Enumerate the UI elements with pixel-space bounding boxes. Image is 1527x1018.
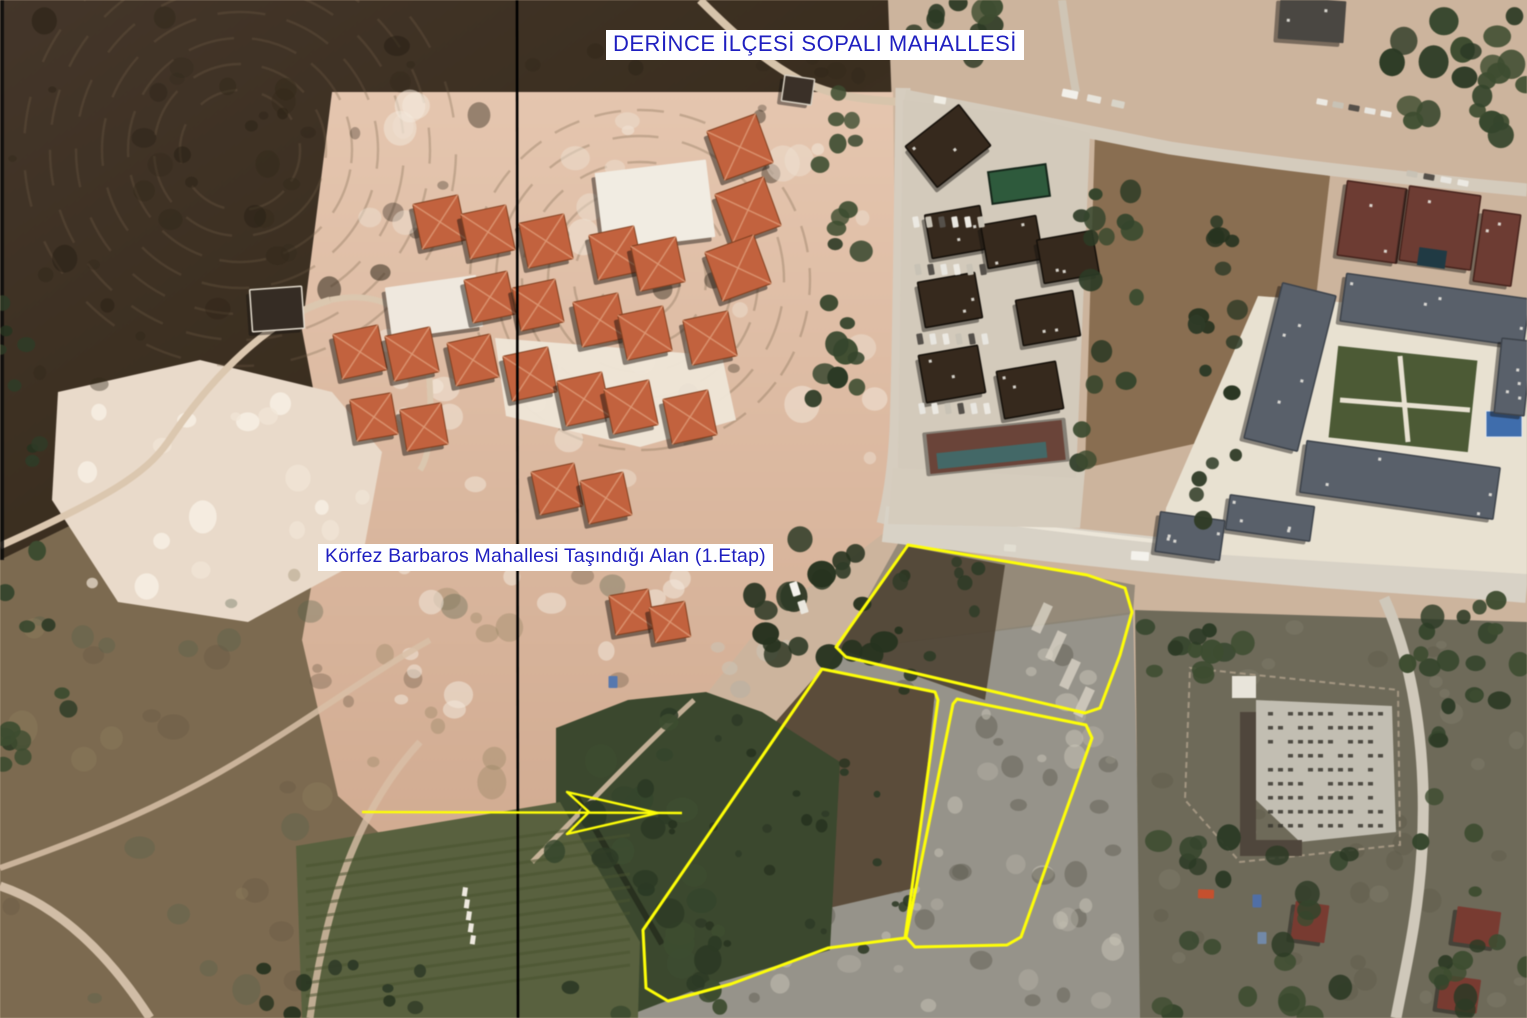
tree: [787, 526, 812, 552]
tree: [637, 779, 654, 798]
divider-line: [517, 0, 518, 1018]
substation-equipment: [1348, 796, 1353, 800]
field-mottle: [1105, 845, 1121, 857]
field-mottle: [1109, 933, 1121, 945]
tree: [839, 201, 858, 218]
tree: [1466, 656, 1486, 672]
substation-equipment: [1298, 796, 1303, 800]
field-mottle: [1001, 756, 1023, 778]
tree: [1464, 824, 1483, 843]
tree: [296, 974, 312, 991]
hill-shrub: [406, 61, 415, 68]
orange-roof-house: [456, 205, 516, 265]
vehicle: [1253, 895, 1262, 908]
apartment-block: [1015, 290, 1080, 345]
tree: [1429, 7, 1458, 35]
substation-equipment: [1308, 712, 1313, 716]
apartment-block: [921, 205, 988, 263]
tree: [708, 936, 722, 952]
field-mottle: [921, 999, 937, 1012]
roof-vent: [1325, 483, 1328, 486]
maroon-apartment-block: [1333, 180, 1407, 267]
tree: [667, 949, 697, 979]
field-mottle: [1099, 756, 1118, 772]
roof-vent: [1438, 297, 1441, 300]
tree: [840, 769, 849, 776]
roof-vent: [1021, 223, 1024, 226]
arrow-shaft: [362, 812, 682, 813]
terrain-mottle: [1350, 882, 1370, 903]
hill-shrub: [245, 120, 258, 131]
field-mottle: [931, 898, 944, 910]
orange-roof-house: [328, 325, 388, 385]
bright-earth: [87, 578, 98, 589]
hill-shrub: [350, 127, 360, 139]
hill-shrub: [384, 36, 410, 56]
substation-equipment: [1268, 726, 1273, 730]
tree: [954, 567, 964, 578]
tree: [256, 963, 271, 975]
bright-earth: [598, 641, 615, 661]
screenshot-root: DERİNCE İLÇESİ SOPALI MAHALLESİ Körfez B…: [0, 0, 1527, 1018]
substation-equipment: [1308, 810, 1313, 814]
substation-equipment: [1268, 810, 1273, 814]
substation-equipment: [1348, 726, 1353, 730]
tree: [1179, 931, 1199, 950]
tree: [1278, 986, 1306, 1016]
substation-equipment: [1328, 726, 1333, 730]
field-mottle: [949, 864, 968, 881]
tree: [17, 337, 35, 352]
terrain-mottle: [98, 638, 115, 654]
hill-shrub: [154, 6, 176, 28]
substation-equipment: [1368, 754, 1373, 758]
tree: [870, 631, 898, 652]
substation-equipment: [1318, 712, 1323, 716]
terrain-mottle: [200, 960, 218, 976]
hill-shrub: [300, 127, 316, 139]
hill-shrub: [255, 150, 279, 178]
tree: [1117, 214, 1135, 230]
hill-shrub: [87, 260, 100, 270]
substation-equipment: [1328, 740, 1333, 744]
orange-roof-house: [498, 347, 558, 407]
tree: [848, 135, 863, 147]
field-mottle: [1025, 994, 1041, 1006]
substation-equipment: [1298, 782, 1303, 786]
hill-shrub: [38, 267, 54, 282]
roof-vent: [1428, 200, 1431, 203]
apartment-block: [918, 345, 985, 403]
roof-vent: [1369, 204, 1372, 207]
orange-roof-house: [380, 327, 440, 387]
terrain-mottle: [1514, 977, 1526, 986]
hill-shrub: [437, 181, 448, 190]
substation-equipment: [1348, 768, 1353, 772]
tree: [762, 824, 772, 833]
hill-shrub: [149, 83, 167, 102]
hill-shrub: [147, 153, 173, 177]
substation-equipment: [1328, 782, 1333, 786]
tree: [840, 317, 855, 329]
terrain-mottle: [236, 888, 249, 900]
terrain-mottle: [1439, 689, 1450, 698]
tree: [1238, 986, 1257, 1007]
tree: [805, 390, 822, 407]
swimming-pool: [988, 164, 1050, 204]
substation-equipment: [1278, 782, 1283, 786]
tree: [1192, 661, 1214, 678]
field-mottle: [993, 738, 1003, 746]
bright-earth: [407, 664, 422, 678]
substation-equipment: [1368, 726, 1373, 730]
orange-roof-house: [395, 403, 449, 456]
substation-equipment: [1298, 712, 1303, 716]
substation-equipment: [1368, 712, 1373, 716]
tree: [1441, 698, 1455, 714]
roof-vent: [1506, 390, 1509, 393]
terrain-mottle: [1286, 620, 1304, 634]
substation-equipment: [1308, 754, 1313, 758]
tree: [1488, 122, 1514, 148]
substation-equipment: [1278, 768, 1283, 772]
apartment-block: [914, 345, 986, 407]
tree: [801, 814, 812, 826]
field-mottle: [934, 848, 943, 857]
vehicle: [1198, 889, 1214, 899]
tree: [732, 714, 743, 726]
terrain-mottle: [1487, 992, 1506, 1007]
tree: [1084, 206, 1106, 231]
bright-earth: [443, 700, 466, 718]
bright-earth: [615, 112, 640, 129]
hill-shrub: [32, 7, 57, 34]
tree: [858, 944, 870, 954]
tree: [821, 928, 827, 934]
substation-equipment: [1298, 810, 1303, 814]
substation-equipment: [1278, 726, 1283, 730]
tree: [1091, 340, 1112, 363]
roof-vent: [1520, 327, 1523, 330]
hill-shrub: [244, 205, 266, 228]
bright-earth: [358, 208, 381, 228]
terrain-mottle: [312, 664, 322, 673]
field-mottle: [1065, 861, 1088, 887]
terrain-mottle: [157, 714, 189, 739]
roof-vent: [1498, 222, 1501, 225]
tree: [723, 940, 731, 947]
tree: [1192, 471, 1207, 486]
field-mottle: [1091, 992, 1111, 1009]
substation-equipment: [1298, 824, 1303, 828]
field-mottle: [977, 763, 998, 781]
tree: [8, 379, 22, 391]
tree: [969, 605, 980, 617]
tree: [1329, 975, 1353, 1000]
terrain-mottle: [1350, 955, 1366, 970]
roof-vent: [1287, 19, 1290, 22]
bright-earth: [670, 568, 691, 590]
dark-roof-building: [246, 286, 305, 336]
tree: [1076, 451, 1097, 470]
terrain-mottle: [1154, 909, 1169, 922]
roof-vent: [1518, 396, 1521, 399]
field-mottle: [970, 951, 993, 970]
tree: [849, 379, 866, 396]
vehicle: [1258, 932, 1267, 944]
substation-equipment: [1368, 768, 1373, 772]
tree: [1457, 610, 1471, 624]
roof-vent: [1516, 368, 1519, 371]
terrain-mottle: [431, 718, 445, 734]
field-mottle: [1079, 898, 1092, 913]
bright-earth: [258, 407, 278, 425]
tree: [850, 241, 873, 262]
substation-equipment: [1368, 796, 1373, 800]
substation-building: [1240, 712, 1256, 846]
tree: [1217, 824, 1241, 850]
hill-shrub: [205, 298, 231, 320]
tree: [1136, 619, 1156, 635]
tree: [1189, 487, 1204, 502]
tree: [695, 918, 707, 927]
bright-earth: [78, 461, 97, 483]
roof-vent: [963, 309, 966, 312]
roof-vent: [1288, 526, 1291, 529]
terrain-mottle: [1420, 991, 1433, 1004]
bright-earth: [91, 404, 106, 421]
tree: [895, 627, 903, 635]
tree: [735, 850, 742, 857]
orange-roof-house: [507, 279, 565, 336]
bright-earth: [812, 143, 825, 155]
tree: [805, 919, 815, 929]
tree: [1340, 847, 1359, 861]
terrain-mottle: [1354, 968, 1377, 991]
tree: [1421, 605, 1445, 629]
tree: [807, 561, 836, 588]
tree: [1200, 640, 1223, 664]
roof-vent: [1042, 330, 1045, 333]
field-mottle: [1066, 730, 1084, 747]
hill-shrub: [758, 105, 767, 112]
relocation-area-label: Körfez Barbaros Mahallesi Taşındığı Alan…: [318, 544, 773, 571]
tree: [1189, 858, 1207, 875]
tree: [562, 981, 580, 994]
substation-equipment: [1288, 712, 1293, 716]
tree: [893, 573, 909, 590]
terrain-mottle: [142, 709, 160, 722]
tree: [1265, 846, 1289, 866]
tree: [1272, 932, 1295, 957]
substation-equipment: [1298, 726, 1303, 730]
tree: [764, 865, 775, 876]
tree: [1129, 289, 1144, 306]
roof-vent: [1232, 501, 1235, 504]
bright-earth: [402, 92, 430, 119]
tree: [1231, 631, 1255, 655]
hill-shrub: [174, 146, 191, 163]
terrain-mottle: [72, 625, 94, 648]
field-mottle: [1053, 911, 1068, 929]
field-mottle: [749, 993, 760, 1003]
substation-equipment: [1278, 810, 1283, 814]
hill-shrub: [136, 331, 146, 340]
bright-earth: [856, 210, 870, 225]
tree: [835, 562, 850, 579]
tree: [1488, 623, 1504, 635]
roof-vent: [1384, 250, 1387, 253]
tree: [844, 112, 860, 129]
tree: [816, 819, 828, 832]
terrain-mottle: [310, 673, 332, 689]
substation-equipment: [1378, 712, 1383, 716]
substation-equipment: [1368, 782, 1373, 786]
tree: [25, 455, 39, 467]
substation-equipment: [1358, 726, 1363, 730]
hill-shrub: [52, 245, 77, 273]
terrain-mottle: [281, 813, 309, 841]
terrain-mottle: [1393, 833, 1415, 856]
tree: [1215, 262, 1231, 276]
hill-shrub: [8, 155, 16, 162]
tree: [14, 748, 31, 765]
substation-equipment: [1318, 824, 1323, 828]
roof-vent: [1062, 270, 1065, 273]
bright-earth: [864, 452, 876, 464]
tree: [31, 436, 48, 451]
tree: [1099, 228, 1115, 246]
terrain-mottle: [1471, 758, 1485, 770]
terrain-mottle: [280, 781, 296, 793]
satellite-map: [0, 0, 1527, 1018]
tree: [1168, 640, 1183, 656]
bright-earth: [561, 146, 590, 170]
tree: [1120, 180, 1141, 204]
substation-equipment: [1358, 824, 1363, 828]
substation-equipment: [1358, 740, 1363, 744]
terrain-mottle: [288, 569, 300, 582]
orange-roof-house: [613, 306, 673, 366]
terrain-mottle: [178, 640, 198, 657]
terrain-mottle: [298, 600, 324, 623]
junction-area: [888, 468, 1085, 528]
substation-equipment: [1318, 796, 1323, 800]
tree: [951, 557, 962, 567]
tree: [715, 735, 722, 742]
hill-shrub: [90, 378, 109, 391]
orange-roof-house: [575, 472, 633, 529]
tree: [656, 748, 673, 761]
tree: [1397, 96, 1423, 117]
tree: [1399, 654, 1417, 673]
terrain-mottle: [232, 974, 260, 1005]
bright-earth: [785, 144, 814, 176]
tree: [1469, 886, 1482, 896]
tree: [407, 1001, 423, 1014]
hill-shrub: [283, 178, 300, 190]
tree: [668, 820, 677, 829]
tree: [1230, 449, 1242, 462]
tree: [1469, 690, 1483, 701]
apartment-block: [996, 361, 1063, 419]
orange-roof-house: [514, 214, 574, 274]
hill-shrub: [468, 102, 491, 128]
substation-equipment: [1338, 824, 1343, 828]
hill-shrub: [100, 298, 114, 312]
field-mottle: [711, 642, 725, 653]
bright-earth: [135, 573, 159, 599]
tree: [828, 238, 843, 250]
tree: [874, 791, 881, 798]
tree: [42, 618, 56, 631]
tree: [793, 790, 801, 797]
tree: [1419, 45, 1449, 78]
field-mottle: [1079, 670, 1097, 685]
tree: [585, 744, 617, 778]
tree: [1194, 511, 1212, 530]
field-mottle: [1037, 755, 1046, 763]
substation-equipment: [1288, 754, 1293, 758]
terrain-mottle: [204, 645, 230, 670]
tree: [811, 156, 830, 173]
apartment-block: [992, 361, 1064, 423]
roof-vent: [1055, 269, 1058, 272]
tree: [848, 352, 865, 365]
terrain-mottle: [1152, 773, 1174, 789]
orange-roof-house: [345, 393, 399, 446]
terrain-mottle: [124, 836, 155, 858]
tree: [924, 651, 936, 661]
tree: [1073, 421, 1091, 437]
bright-earth: [231, 412, 241, 421]
tree: [1152, 997, 1173, 1015]
tree: [899, 902, 908, 912]
terrain-mottle: [225, 599, 237, 608]
roof-vent: [1489, 493, 1492, 496]
terrain-mottle: [470, 613, 482, 624]
substation-equipment: [1348, 712, 1353, 716]
tree: [1188, 315, 1206, 334]
tree: [1430, 733, 1449, 747]
roof-vent: [1486, 229, 1489, 232]
tree: [383, 995, 395, 1007]
roof-vent: [1055, 328, 1058, 331]
tree: [820, 295, 838, 312]
substation-equipment: [1358, 782, 1363, 786]
terrain-mottle: [425, 707, 438, 719]
vehicle: [1131, 551, 1150, 561]
field-mottle: [1026, 667, 1037, 676]
tree: [1226, 335, 1243, 349]
tree: [54, 687, 69, 699]
gray-building: [1273, 0, 1346, 47]
tree: [1473, 600, 1487, 615]
field-mottle: [770, 974, 789, 994]
tree: [828, 112, 844, 126]
terrain-mottle: [2, 898, 19, 915]
terrain-mottle: [1262, 658, 1276, 669]
tree: [1483, 25, 1511, 47]
tree: [971, 562, 985, 576]
roof-vent: [1240, 519, 1243, 522]
tree: [1486, 591, 1507, 610]
substation-equipment: [1318, 740, 1323, 744]
tree: [591, 848, 618, 869]
tree: [1489, 934, 1506, 950]
tree: [1223, 385, 1240, 400]
substation-equipment: [1348, 740, 1353, 744]
